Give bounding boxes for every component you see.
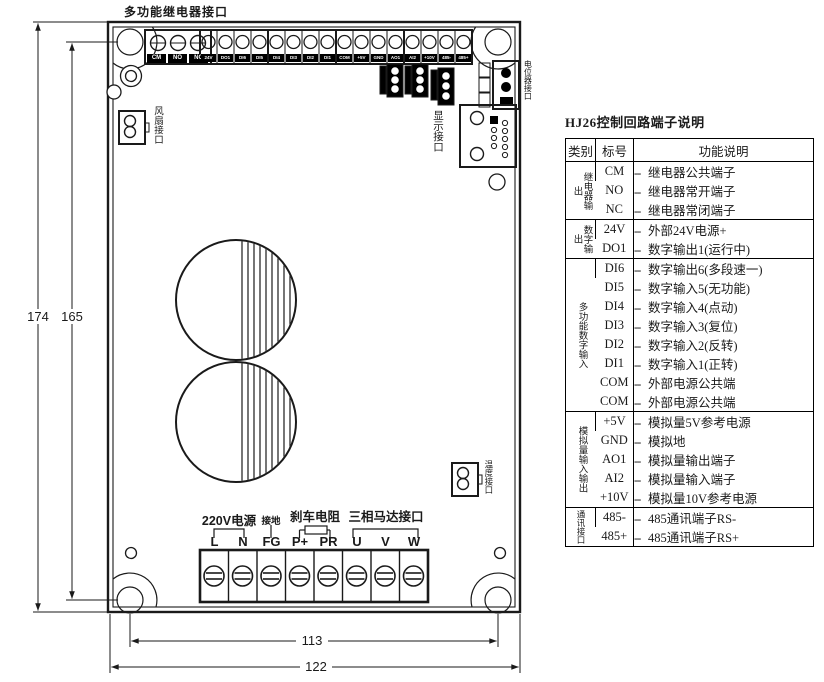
table-row: DI5 --数字输入5(无功能) — [566, 278, 814, 297]
category-label: 多功能数字输入 — [576, 302, 586, 369]
relay-interface-label: 多功能继电器接口 — [124, 3, 228, 20]
terminal-label: COM — [337, 54, 352, 62]
terminal-letter: P+ — [286, 534, 315, 549]
table-row: 通讯接口 485- --485通讯端子RS- — [566, 508, 814, 528]
terminal-label: DI6 — [235, 54, 250, 62]
table-row: 多功能数字输入 DI6 --数字输出6(多段速一) — [566, 259, 814, 279]
dim-height-outer: 174 — [24, 309, 52, 324]
fan-connector — [119, 111, 149, 144]
table-header-row: 类别 标号 功能说明 — [566, 139, 814, 162]
capacitor-bottom — [176, 361, 296, 483]
table-row: 485+ --485通讯端子RS+ — [566, 527, 814, 547]
mounting-holes — [113, 27, 515, 613]
table-row: DI1 --数字输入1(正转) — [566, 354, 814, 373]
terminal-label: AI2 — [405, 54, 420, 62]
terminal-label: CM — [147, 54, 166, 63]
terminal-label: 485+ — [456, 54, 471, 62]
terminal-label: AO1 — [388, 54, 403, 62]
terminal-letter: V — [371, 534, 400, 549]
col-header-tag: 标号 — [596, 139, 634, 162]
terminal-label: DI1 — [320, 54, 335, 62]
dim-height-holes: 165 — [58, 309, 86, 324]
table-row: 继电器输出 CM --继电器公共端子 — [566, 162, 814, 182]
table-row: DO1 --数字输出1(运行中) — [566, 239, 814, 259]
small-holes — [107, 66, 506, 559]
terminal-label: GND — [371, 54, 386, 62]
table-row: +10V --模拟量10V参考电源 — [566, 488, 814, 508]
table-title: HJ26控制回路端子说明 — [565, 112, 817, 131]
col-header-category: 类别 — [566, 139, 596, 162]
terminal-label: DI2 — [303, 54, 318, 62]
terminal-label: DI4 — [269, 54, 284, 62]
terminal-label: DO1 — [218, 54, 233, 62]
desc-cell: --继电器公共端子 — [634, 162, 814, 182]
pcb-terminal-diagram: 多功能继电器接口 CM NO NC 24V DO1 DI6 DI5 DI4 DI… — [0, 0, 824, 682]
dimension-lines — [33, 22, 520, 673]
table-row: NO --继电器常开端子 — [566, 181, 814, 200]
jumper-blocks — [380, 64, 454, 105]
table-row: NC --继电器常闭端子 — [566, 200, 814, 220]
potentiometer-interface-label: 电位器接口 — [523, 60, 531, 116]
terminal-letter: N — [229, 534, 258, 549]
terminal-label: NO — [168, 54, 187, 63]
terminal-letter: PR — [314, 534, 343, 549]
table-row: AO1 --模拟量输出端子 — [566, 450, 814, 469]
table-row: 数字输出 24V --外部24V电源+ — [566, 220, 814, 240]
terminal-letter: FG — [257, 534, 286, 549]
fan-interface-label: 风扇接口 — [151, 106, 161, 164]
table-row: AI2 --模拟量输入端子 — [566, 469, 814, 488]
table-row: DI2 --数字输入2(反转) — [566, 335, 814, 354]
category-label: 数字输出 — [571, 224, 591, 254]
terminal-letter: L — [200, 534, 229, 549]
capacitor-top — [176, 239, 296, 361]
three-phase-motor-label: 三相马达接口 — [344, 506, 428, 525]
terminal-letter: W — [400, 534, 429, 549]
dim-width-holes: 113 — [296, 633, 328, 648]
table-row: 模拟量输入输出 +5V --模拟量5V参考电源 — [566, 412, 814, 432]
power-terminal-block — [200, 550, 428, 602]
brake-resistor-label: 刹车电阻 — [287, 506, 343, 525]
table-row: DI3 --数字输入3(复位) — [566, 316, 814, 335]
category-label: 继电器输出 — [571, 170, 591, 212]
terminal-label: +5V — [354, 54, 369, 62]
terminal-letter: U — [343, 534, 372, 549]
temperature-interface-label: 温度接口 — [484, 460, 493, 508]
category-label: 模拟量输入输出 — [576, 426, 586, 493]
potentiometer-connector — [479, 61, 519, 109]
table-row: COM --外部电源公共端 — [566, 373, 814, 392]
terminal-label: 24V — [201, 54, 216, 62]
display-interface-label: 显示接口 — [432, 110, 443, 170]
category-label: 通讯接口 — [576, 510, 585, 544]
terminal-label: DI5 — [252, 54, 267, 62]
table-row: COM --外部电源公共端 — [566, 392, 814, 412]
dash: -- — [634, 166, 648, 181]
terminal-table: 类别 标号 功能说明 继电器输出 CM --继电器公共端子 NO --继电器常开… — [565, 138, 814, 547]
temperature-connector — [452, 463, 482, 496]
table-row: GND --模拟地 — [566, 431, 814, 450]
display-connector — [460, 105, 516, 167]
dim-width-outer: 122 — [300, 659, 332, 674]
ground-label: 接地 — [257, 513, 285, 527]
power-220v-label: 220V电源 — [194, 510, 264, 529]
terminal-table-section: HJ26控制回路端子说明 类别 标号 功能说明 继电器输出 CM --继电器公共… — [565, 112, 817, 547]
tag-cell: CM — [596, 162, 634, 182]
table-row: DI4 --数字输入4(点动) — [566, 297, 814, 316]
terminal-label: 485- — [439, 54, 454, 62]
terminal-label: DI3 — [286, 54, 301, 62]
col-header-desc: 功能说明 — [634, 139, 814, 162]
terminal-label: +10V — [422, 54, 437, 62]
